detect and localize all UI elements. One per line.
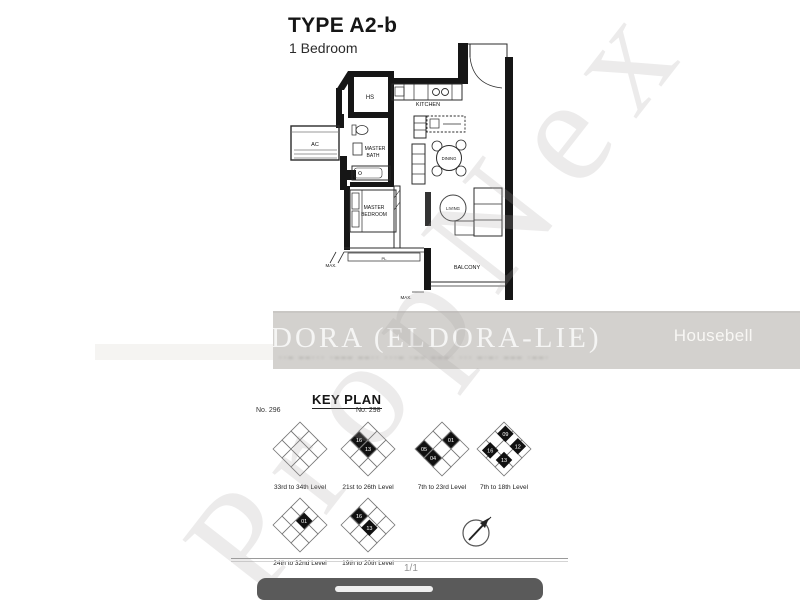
floorplan-drawing: HS KITCHEN AC MASTER BATH DINING MASTER …: [283, 35, 523, 310]
unit-number: 05: [421, 447, 427, 453]
keyplan-diagram-svg: 09161213: [459, 420, 549, 478]
keyplan-diagram: 091612137th to 18th Level: [459, 420, 549, 491]
blurred-area-text: ··– ––··· ·––– ––·· ···– ·–– –––· ··· –·…: [279, 353, 550, 362]
room-label-masterbath-2: BATH: [367, 153, 380, 159]
room-label-masterbed-2: BEDROOM: [361, 212, 387, 218]
footer-divider: [231, 558, 568, 559]
room-label-living: LIVING: [446, 206, 460, 211]
unit-number: 16: [356, 438, 362, 444]
room-label-masterbed-1: MASTER: [364, 205, 385, 211]
keyplan-diagram-label: 7th to 18th Level: [459, 484, 549, 491]
room-label-masterbath-1: MASTER: [365, 146, 386, 152]
unit-number: 13: [365, 447, 371, 453]
unit-number: 13: [501, 458, 507, 464]
unit-number: 09: [502, 432, 508, 438]
unit-number: 13: [366, 526, 372, 532]
room-label-ac: AC: [311, 142, 319, 148]
room-label-kitchen: KITCHEN: [416, 102, 440, 108]
faint-watermark-strip: [95, 344, 273, 360]
keyplan-diagram: 161319th to 20th Level: [323, 496, 413, 567]
block-number-right: No. 298: [356, 407, 381, 414]
room-label-dining: DINING: [442, 156, 457, 161]
footer-divider-2: [231, 561, 568, 562]
annotation-max-left: MAX.: [325, 263, 336, 268]
unit-number: 16: [356, 514, 362, 520]
unit-number: 04: [430, 456, 436, 462]
page-indicator: 1/1: [404, 563, 418, 574]
watermark-band: DORA (ELDORA-LIE) Housebell ··– ––··· ·–…: [273, 311, 800, 369]
unit-number: 01: [448, 438, 454, 444]
unit-number: 12: [515, 444, 521, 450]
home-bar: [257, 578, 543, 600]
keyplan-diagram-svg: 1613: [323, 496, 413, 554]
brand-watermark: Housebell: [674, 326, 753, 346]
block-number-left: No. 296: [256, 407, 281, 414]
annotation-pl: PL: [382, 256, 388, 261]
unit-number: 01: [301, 519, 307, 525]
annotation-max-bottom: MAX.: [400, 295, 411, 300]
room-label-hs: HS: [366, 95, 374, 101]
north-arrow-icon: [456, 510, 498, 552]
unit-number: 16: [487, 448, 493, 454]
room-label-balcony: BALCONY: [454, 265, 481, 271]
home-indicator-pill[interactable]: [335, 586, 433, 592]
app-screen: TYPE A2-b 1 Bedroom PropNex: [0, 0, 800, 600]
agent-watermark-text: DORA (ELDORA-LIE): [273, 322, 601, 355]
